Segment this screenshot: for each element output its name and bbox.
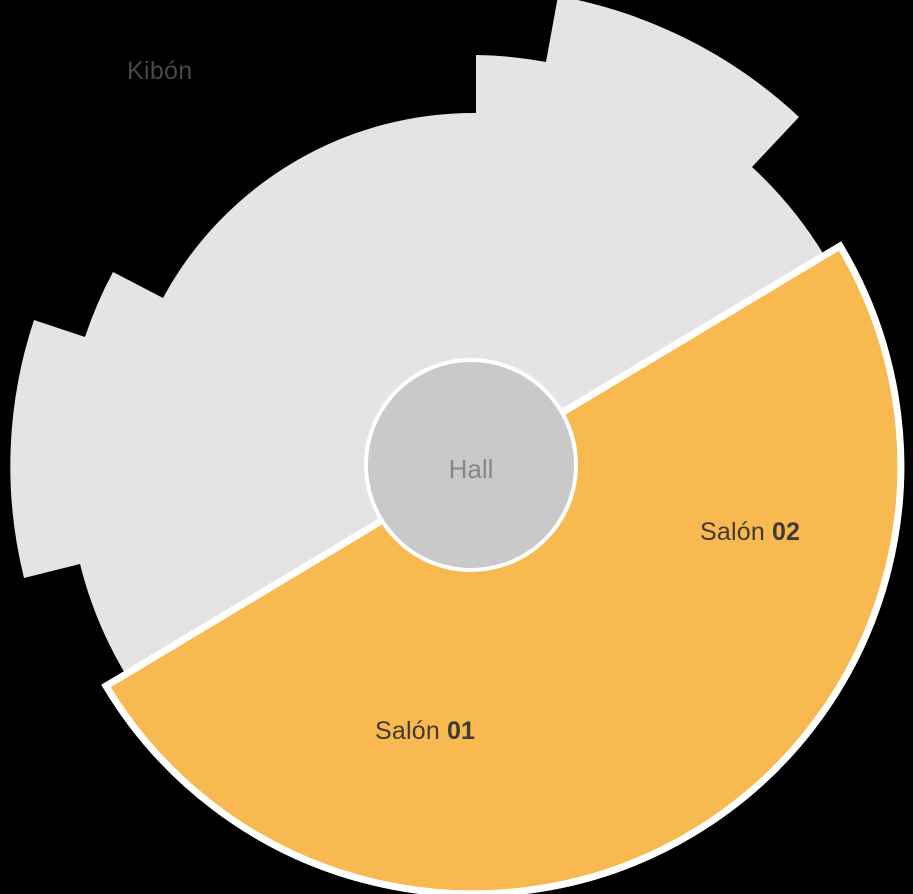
venue-seat-map: Kibón Hall Salón01 Salón02 bbox=[0, 0, 913, 894]
section-label-salon-02: Salón02 bbox=[700, 518, 800, 546]
venue-map-svg: Kibón Hall Salón01 Salón02 bbox=[0, 0, 913, 894]
section-label-salon-01: Salón01 bbox=[375, 717, 475, 745]
venue-title: Kibón bbox=[127, 57, 192, 85]
section-name: Salón bbox=[700, 518, 765, 546]
hall-label: Hall bbox=[449, 454, 494, 484]
section-number: 02 bbox=[772, 518, 800, 546]
section-number: 01 bbox=[447, 717, 475, 745]
section-name: Salón bbox=[375, 717, 440, 745]
